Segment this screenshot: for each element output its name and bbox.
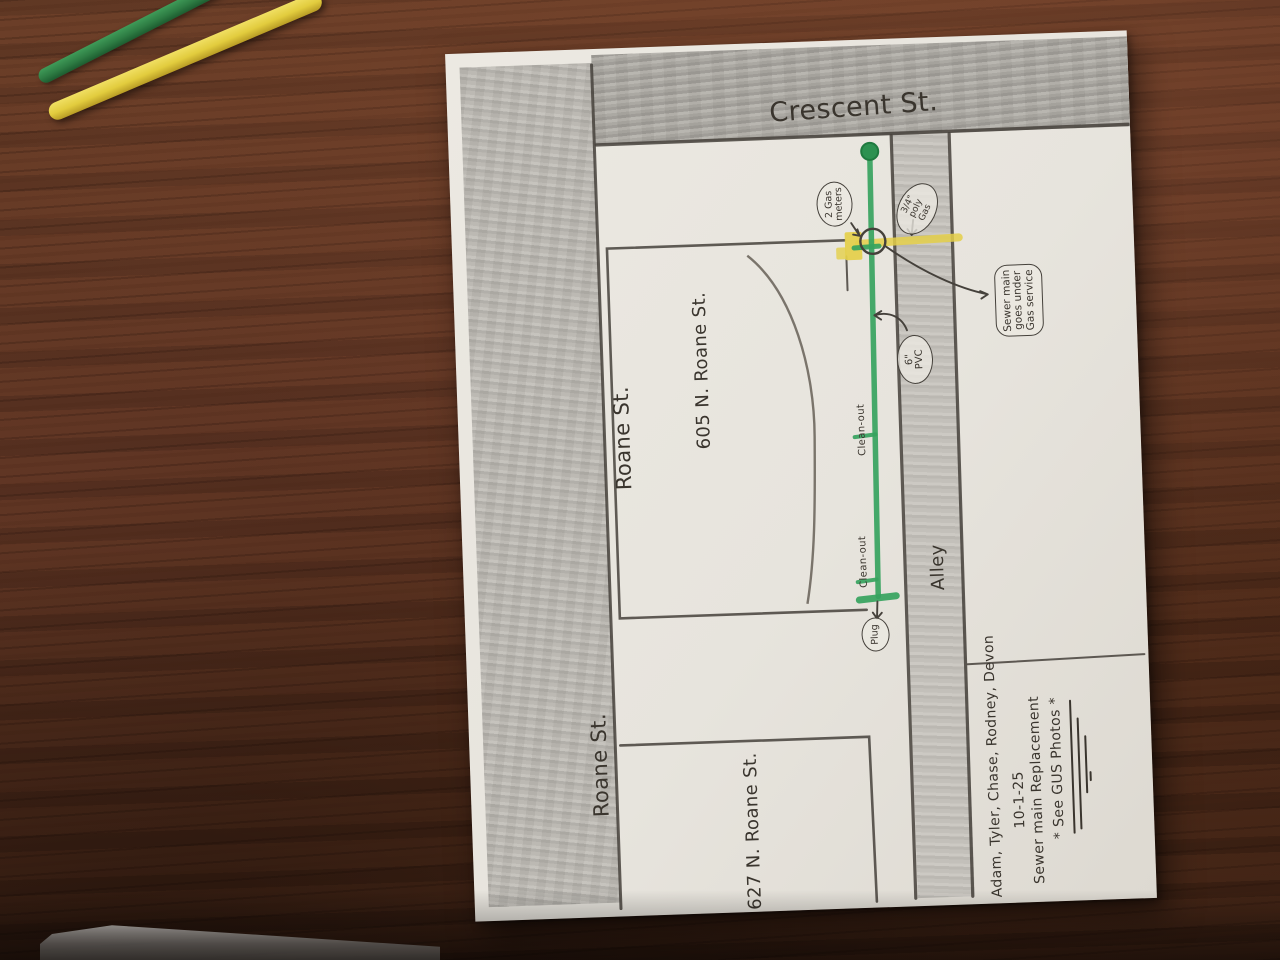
cleanout-label-lower: Clean-out [857,536,870,589]
gas-service-highlight [836,228,960,260]
callout-sewer-size-line2: PVC [915,349,926,369]
lot-605-outline [607,240,867,618]
callout-crossing-line3: Gas service [1023,269,1036,330]
driveway-curve [747,254,820,606]
gas-meters-highlight-foot [836,247,846,259]
sewer-end-cap [859,596,896,600]
crescent-south-line [596,124,1128,145]
desk-surface: Crescent St. Roane St. Roane St. Alley 6… [0,0,1280,960]
cleanout-label-upper: Clean-out [856,404,869,457]
lot-605-east-stub [846,256,847,290]
map-paper: Crescent St. Roane St. Roane St. Alley 6… [445,30,1157,921]
callout-crossing-note: Sewer main goes under Gas service [994,263,1044,337]
arrow-sewer-size [874,310,907,331]
callout-plug-label: Plug [870,624,881,645]
alley-east-line [946,134,976,897]
arrow-crossing-note [885,242,988,301]
callout-gas-meters-line2: meters [834,187,845,221]
sewer-tap-dot [861,143,879,161]
arrow-gas-meters [851,223,859,236]
clear-ruler-edge [40,922,440,960]
sewer-main-highlight [843,153,897,600]
alley-west-line [889,136,918,899]
alley-label: Alley [926,544,949,591]
arrow-plug [872,601,882,618]
notes-underline [1070,700,1093,833]
roane-street-label-lower: Roane St. [586,713,614,818]
sewer-main-line [863,153,885,596]
notes-date: 10-1-25 [1010,771,1028,829]
roane-street-label-upper: Roane St. [609,386,637,491]
sewer-meter-stub [854,246,879,248]
